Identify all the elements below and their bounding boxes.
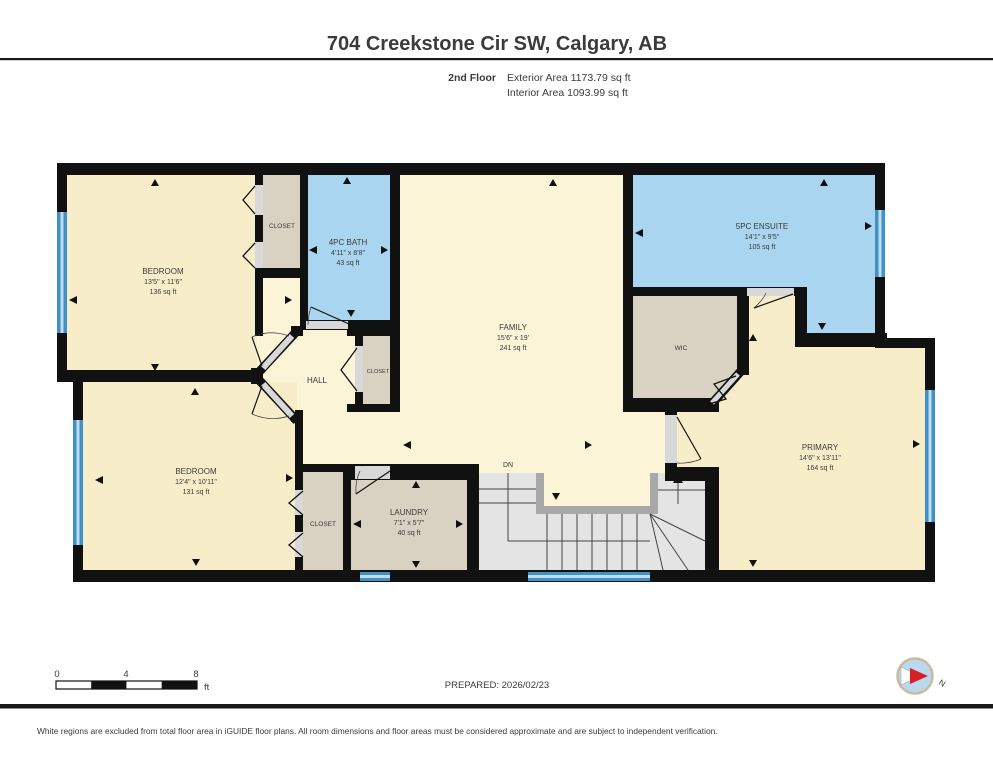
compass-north-label: N xyxy=(937,677,948,689)
svg-text:BEDROOM: BEDROOM xyxy=(142,267,184,276)
scale-bar: 0 4 8 ft xyxy=(54,669,209,693)
stairs-dn-label: DN xyxy=(503,462,513,469)
svg-text:5PC ENSUITE: 5PC ENSUITE xyxy=(736,222,788,231)
floorplan-canvas: 704 Creekstone Cir SW, Calgary, AB 2nd F… xyxy=(0,0,993,768)
svg-text:136 sq ft: 136 sq ft xyxy=(150,289,177,296)
title-divider xyxy=(0,58,993,60)
page-title: 704 Creekstone Cir SW, Calgary, AB xyxy=(327,33,667,55)
floorplan-page: 704 Creekstone Cir SW, Calgary, AB 2nd F… xyxy=(0,0,993,768)
floor-label: 2nd Floor xyxy=(448,72,496,84)
scale-0: 0 xyxy=(54,669,59,680)
svg-text:241 sq ft: 241 sq ft xyxy=(500,345,527,352)
exterior-area: Exterior Area 1173.79 sq ft xyxy=(507,72,631,84)
closet1-floor xyxy=(261,173,302,269)
header: 704 Creekstone Cir SW, Calgary, AB 2nd F… xyxy=(0,33,993,99)
svg-text:131 sq ft: 131 sq ft xyxy=(183,489,210,496)
svg-text:40 sq ft: 40 sq ft xyxy=(398,530,421,537)
svg-text:105 sq ft: 105 sq ft xyxy=(749,244,776,251)
scale-unit: ft xyxy=(204,682,210,693)
wic-label: WIC xyxy=(675,345,688,352)
svg-text:FAMILY: FAMILY xyxy=(499,323,528,332)
closet2-label: CLOSET xyxy=(310,521,336,528)
svg-text:14'6" x 13'11": 14'6" x 13'11" xyxy=(799,455,841,462)
hall-label: HALL xyxy=(307,376,328,385)
svg-text:4PC BATH: 4PC BATH xyxy=(329,238,368,247)
family-label: FAMILY 15'6" x 19' 241 sq ft xyxy=(497,323,529,352)
svg-text:13'5" x 11'6": 13'5" x 11'6" xyxy=(144,279,182,286)
svg-text:PRIMARY: PRIMARY xyxy=(802,443,839,452)
svg-text:164 sq ft: 164 sq ft xyxy=(807,465,834,472)
compass-icon: N xyxy=(898,659,948,694)
svg-text:4'11" x 8'8": 4'11" x 8'8" xyxy=(331,250,365,257)
svg-text:15'6" x 19': 15'6" x 19' xyxy=(497,335,529,342)
closet1-label: CLOSET xyxy=(269,223,295,230)
scale-8: 8 xyxy=(193,669,198,680)
scale-4: 4 xyxy=(123,669,128,680)
svg-text:12'4" x 10'11": 12'4" x 10'11" xyxy=(175,479,217,486)
prepared-date: PREPARED: 2026/02/23 xyxy=(445,680,549,691)
footer-divider xyxy=(0,704,993,709)
svg-text:BEDROOM: BEDROOM xyxy=(175,467,217,476)
disclaimer-text: White regions are excluded from total fl… xyxy=(37,726,718,736)
bedroom2-floor xyxy=(83,382,297,572)
svg-text:43 sq ft: 43 sq ft xyxy=(337,260,360,267)
svg-text:14'1" x 9'5": 14'1" x 9'5" xyxy=(745,234,780,241)
svg-text:LAUNDRY: LAUNDRY xyxy=(390,508,429,517)
bath-floor xyxy=(306,173,392,321)
hall-closet-label: CLOSET xyxy=(367,369,390,375)
svg-text:7'1" x 5'7": 7'1" x 5'7" xyxy=(394,520,425,527)
interior-area: Interior Area 1093.99 sq ft xyxy=(507,87,628,99)
